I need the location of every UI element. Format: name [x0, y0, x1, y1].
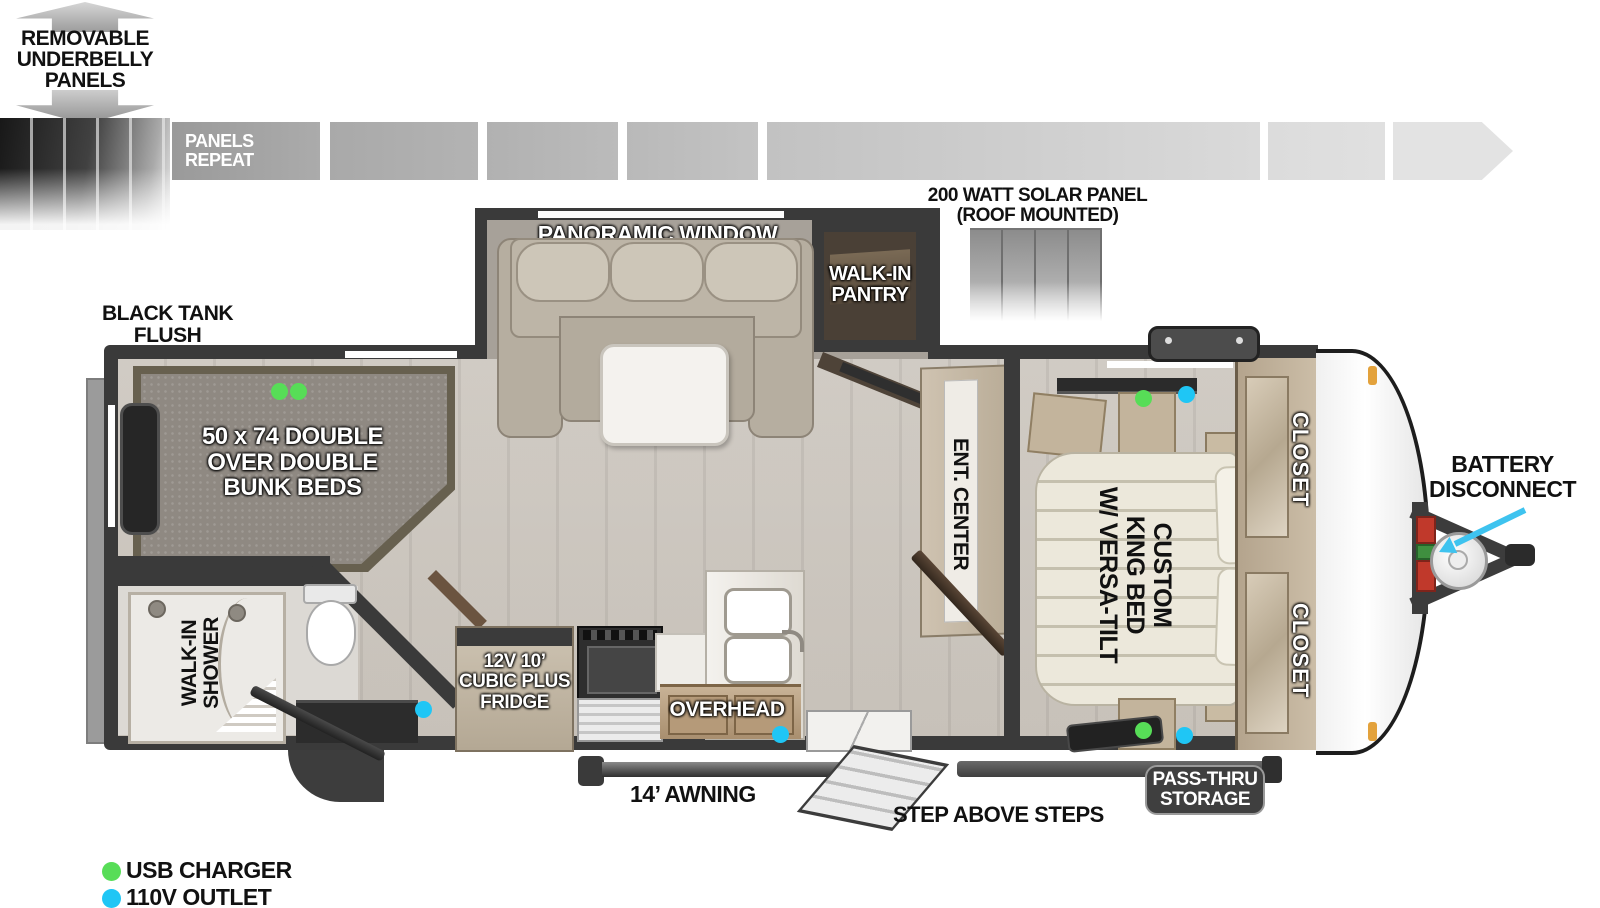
direction-arrow-icon [1393, 122, 1513, 180]
fridge-label: 12V 10’ CUBIC PLUS FRIDGE [457, 652, 572, 713]
sofa-cushion [516, 242, 610, 302]
panel-segment [487, 122, 618, 180]
pass-thru-tray-cap [1262, 756, 1282, 783]
usb-charger-dot [1135, 390, 1152, 407]
window-strip [538, 211, 784, 218]
bunk-window [120, 403, 160, 535]
panel-segment [1268, 122, 1385, 180]
closet-door [1245, 572, 1289, 734]
shower-head-icon [148, 600, 166, 618]
outlet-dot [415, 701, 432, 718]
usb-legend-label: USB CHARGER [126, 858, 292, 883]
outlet-dot [1178, 386, 1195, 403]
underbelly-label: REMOVABLE UNDERBELLY PANELS [5, 28, 165, 91]
bathroom-wall [118, 556, 330, 586]
panels-repeat-label: PANELS REPEAT [172, 132, 254, 171]
panel-segment [330, 122, 478, 180]
steps-label: STEP ABOVE STEPS [893, 803, 1104, 827]
outlet-dot [772, 726, 789, 743]
dinette-table [600, 344, 729, 446]
solar-panel-graphic [970, 228, 1102, 324]
usb-charger-dot [271, 383, 288, 400]
outlet-legend-dot [102, 889, 121, 908]
sofa-cushion [704, 242, 798, 302]
kitchen-sink [724, 588, 792, 636]
outlet-dot [1176, 727, 1193, 744]
marker-light-icon [1368, 366, 1377, 385]
closet-door [1245, 376, 1289, 538]
usb-charger-dot [290, 383, 307, 400]
overhead-label: OVERHEAD [662, 699, 792, 721]
stove-drawers [577, 698, 663, 742]
window-strip [1107, 361, 1233, 368]
window-strip [590, 750, 790, 757]
exterior-bracket [1148, 326, 1260, 362]
battery-disconnect-label: BATTERY DISCONNECT [1405, 452, 1600, 501]
panel-segment: PANELS REPEAT [172, 122, 320, 180]
panel-segment [767, 122, 1260, 180]
panel-segment [627, 122, 758, 180]
battery-arrow-icon [1425, 500, 1535, 562]
pass-thru-badge: PASS-THRU STORAGE [1145, 765, 1265, 815]
outlet-legend-label: 110V OUTLET [126, 885, 271, 908]
awning-end-cap [578, 756, 604, 786]
sofa-cushion [610, 242, 704, 302]
closet-label-bottom: CLOSET [1284, 558, 1316, 743]
stove [577, 626, 663, 702]
window-strip [1125, 750, 1179, 757]
underbelly-panels-image [0, 118, 170, 230]
usb-charger-dot [1135, 722, 1152, 739]
window-strip [108, 405, 115, 527]
black-tank-flush-label: BLACK TANK FLUSH [75, 303, 260, 348]
bunk-beds-label: 50 x 74 DOUBLE OVER DOUBLE BUNK BEDS [160, 424, 425, 501]
floorplan-diagram: REMOVABLE UNDERBELLY PANELS PANELS REPEA… [0, 0, 1600, 908]
closet-label-top: CLOSET [1284, 370, 1316, 550]
awning-label: 14’ AWNING [630, 782, 756, 807]
marker-light-icon [1368, 722, 1377, 741]
walk-in-pantry-label: WALK-IN PANTRY [806, 264, 934, 307]
usb-legend-dot [102, 862, 121, 881]
walk-in-shower-label: WALK-IN SHOWER [179, 588, 235, 738]
window-strip [345, 351, 457, 358]
fridge: 12V 10’ CUBIC PLUS FRIDGE [455, 626, 574, 752]
door-swing [288, 750, 384, 802]
king-bed-label: CUSTOM KING BED W/ VERSA-TILT [1065, 450, 1175, 700]
pass-thru-label: PASS-THRU STORAGE [1153, 770, 1258, 811]
solar-panel-label: 200 WATT SOLAR PANEL (ROOF MOUNTED) [910, 186, 1165, 227]
bedroom-wall [1004, 358, 1020, 750]
toilet-bowl [306, 600, 356, 666]
